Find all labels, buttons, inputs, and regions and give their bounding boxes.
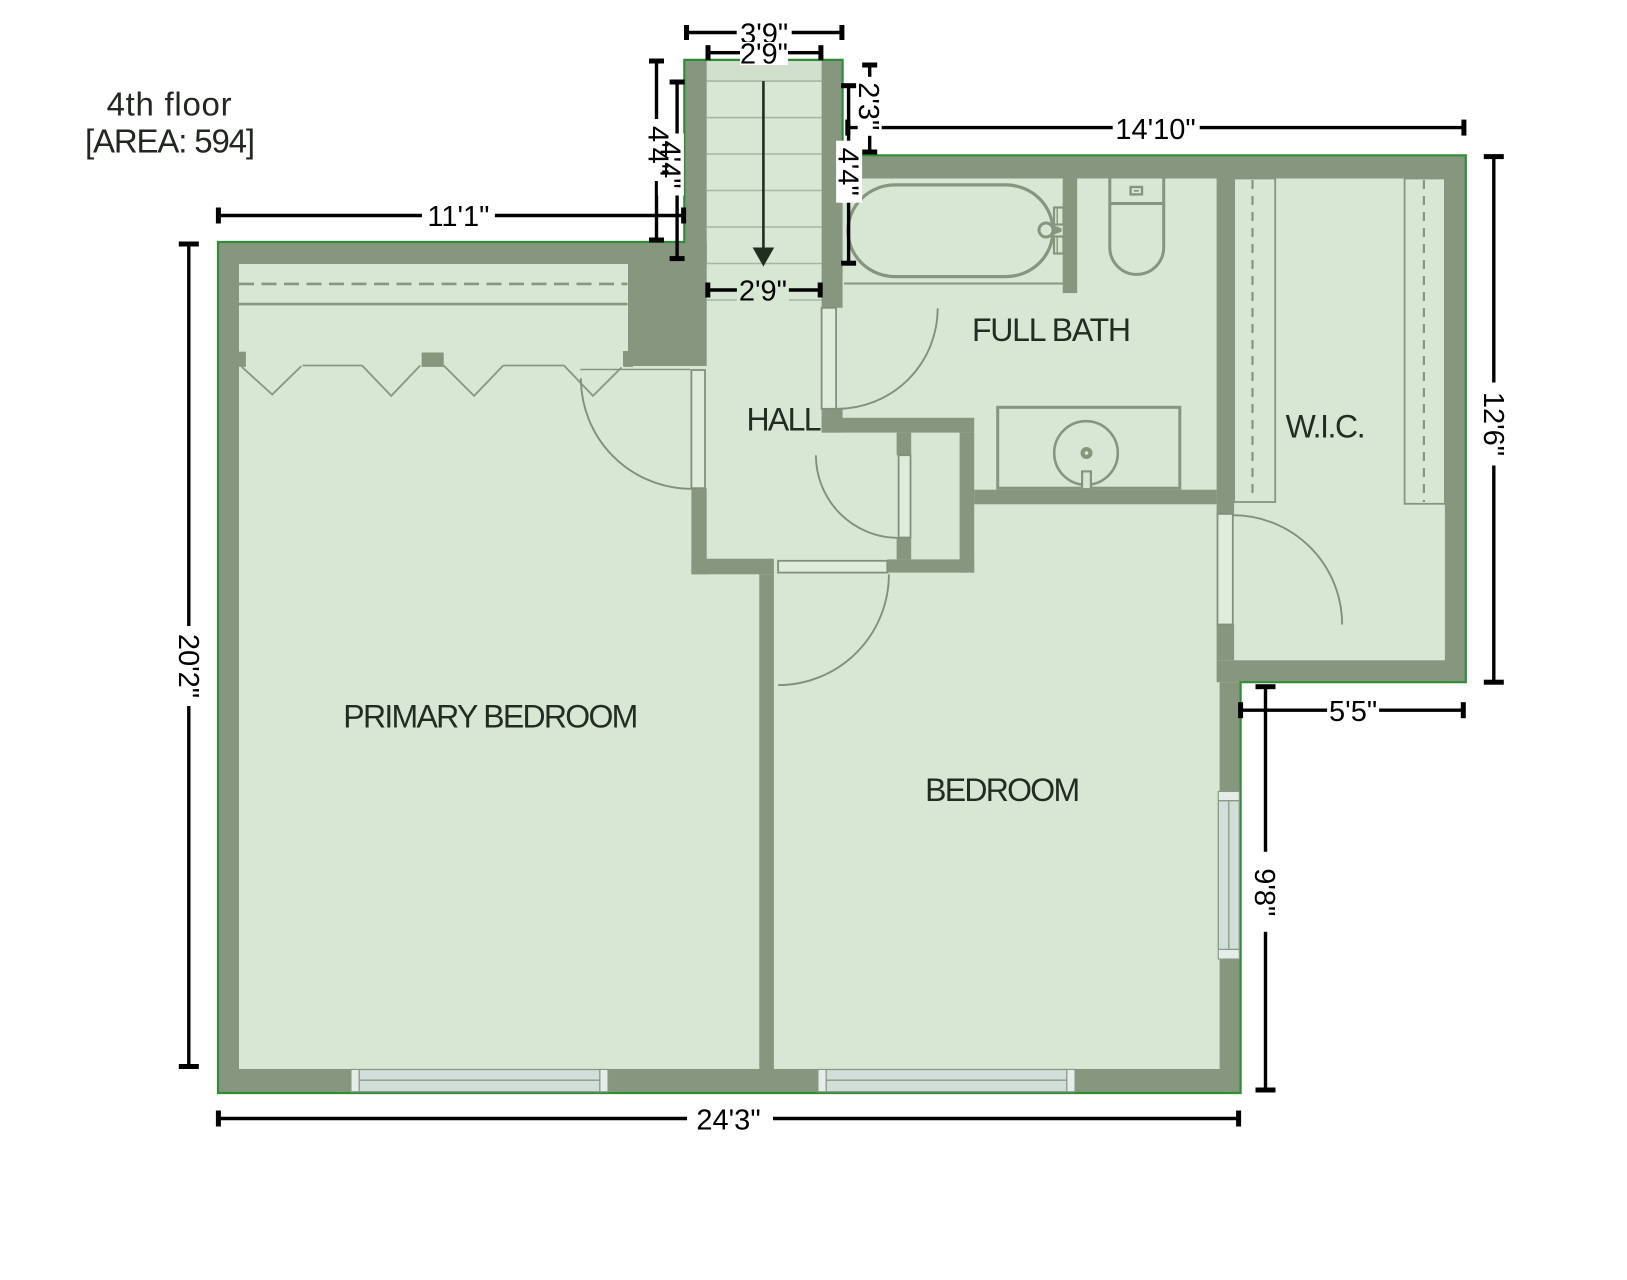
svg-text:FULL BATH: FULL BATH (972, 312, 1131, 348)
svg-text:24'3": 24'3" (696, 1105, 760, 1137)
svg-text:14'10": 14'10" (1115, 114, 1195, 146)
svg-text:PRIMARY BEDROOM: PRIMARY BEDROOM (343, 699, 638, 735)
svg-text:[AREA: 594]: [AREA: 594] (85, 123, 255, 160)
svg-text:HALL: HALL (747, 402, 822, 438)
svg-text:BEDROOM: BEDROOM (925, 772, 1080, 808)
svg-text:9'8": 9'8" (1248, 868, 1280, 916)
svg-text:4'4": 4'4" (653, 140, 685, 188)
svg-text:4'4": 4'4" (832, 148, 864, 196)
svg-text:2'3": 2'3" (852, 82, 884, 130)
svg-text:11'1": 11'1" (427, 201, 489, 233)
svg-text:12'6": 12'6" (1477, 392, 1509, 456)
svg-text:W.I.C.: W.I.C. (1286, 409, 1366, 445)
svg-text:2'9": 2'9" (739, 276, 787, 308)
svg-text:2'9": 2'9" (740, 39, 788, 71)
svg-text:4th floor: 4th floor (107, 86, 232, 123)
svg-text:20'2": 20'2" (172, 634, 204, 698)
svg-text:5'5": 5'5" (1329, 696, 1377, 728)
